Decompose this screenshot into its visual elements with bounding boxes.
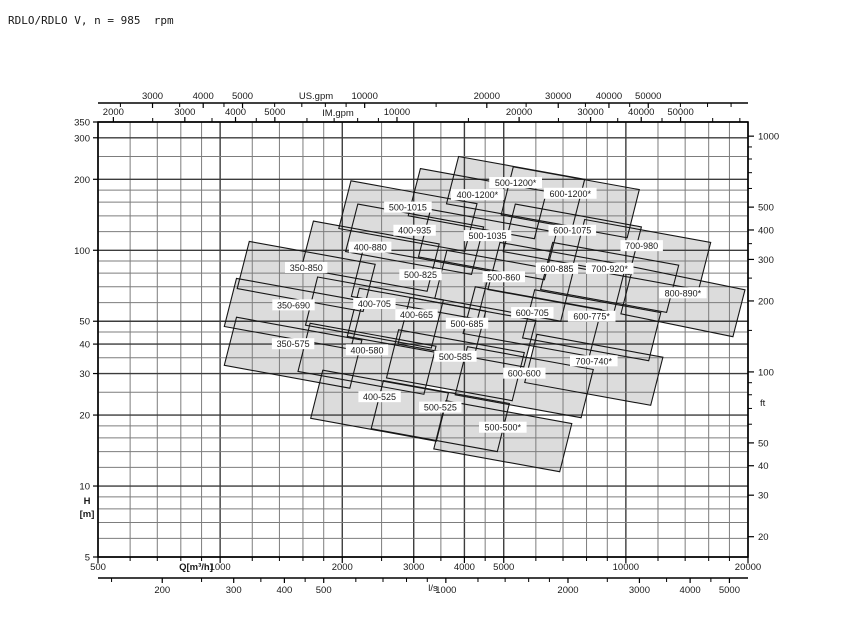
axis-label-usgpm: US.gpm	[299, 91, 333, 102]
axis-label-ft: ft	[760, 398, 766, 409]
ls-tick-label: 3000	[629, 585, 650, 596]
pump-model-label: 500-1015	[389, 203, 427, 213]
h-axis-tick-label: 40	[79, 340, 90, 351]
pump-model-label: 600-1075	[553, 226, 591, 236]
ls-tick-label: 400	[276, 585, 292, 596]
q-axis-tick-label: 500	[90, 562, 106, 573]
ft-axis-tick-label: 500	[758, 203, 774, 214]
ls-tick-label: 2000	[557, 585, 578, 596]
q-axis-tick-label: 4000	[454, 562, 475, 573]
usgpm-tick-label: 5000	[232, 91, 253, 102]
h-axis-tick-label: 10	[79, 482, 90, 493]
ls-tick-label: 4000	[680, 585, 701, 596]
pump-model-label: 350-850	[290, 263, 323, 273]
q-axis-tick-label: 20000	[735, 562, 761, 573]
axis-label-h: H	[84, 496, 91, 507]
q-axis-tick-label: 2000	[332, 562, 353, 573]
ft-axis-tick-label: 20	[758, 532, 769, 543]
axis-label-q-m3h: Q[m³/h]	[179, 562, 213, 573]
ft-axis-tick-label: 300	[758, 255, 774, 266]
pump-model-label: 500-825	[404, 270, 437, 280]
pump-model-label: 600-1200*	[549, 189, 591, 199]
pump-model-label: 800-890*	[665, 288, 702, 298]
pump-range-chart: RDLO/RDLO V, n = 985 rpm 350300200100504…	[0, 0, 850, 630]
pump-model-label: 500-525	[424, 403, 457, 413]
pump-model-label: 350-690	[277, 300, 310, 310]
imgpm-tick-label: 4000	[225, 107, 246, 118]
q-axis-tick-label: 10000	[613, 562, 639, 573]
h-axis-tick-label: 30	[79, 369, 90, 380]
pump-model-label: 600-705	[516, 308, 549, 318]
axis-unit-m: [m]	[80, 509, 95, 520]
pump-model-label: 400-580	[350, 345, 383, 355]
usgpm-tick-label: 30000	[545, 91, 571, 102]
h-axis-tick-label: 100	[74, 246, 90, 257]
q-axis-tick-label: 3000	[403, 562, 424, 573]
ls-tick-label: 5000	[719, 585, 740, 596]
axis-label-imgpm: IM.gpm	[322, 108, 354, 119]
usgpm-tick-label: 20000	[474, 91, 500, 102]
h-axis-tick-label: 200	[74, 175, 90, 186]
pump-model-label: 500-1035	[468, 231, 506, 241]
pump-model-label: 500-685	[450, 319, 483, 329]
imgpm-tick-label: 10000	[384, 107, 410, 118]
ls-tick-label: 200	[154, 585, 170, 596]
usgpm-tick-label: 3000	[142, 91, 163, 102]
imgpm-tick-label: 50000	[667, 107, 693, 118]
pump-model-label: 400-880	[354, 243, 387, 253]
imgpm-tick-label: 40000	[628, 107, 654, 118]
pump-model-label: 600-775*	[573, 312, 610, 322]
ft-axis-tick-label: 400	[758, 225, 774, 236]
ls-tick-label: 1000	[435, 585, 456, 596]
pump-model-label: 700-920*	[591, 264, 628, 274]
usgpm-tick-label: 50000	[635, 91, 661, 102]
usgpm-tick-label: 10000	[351, 91, 377, 102]
h-axis-tick-label: 50	[79, 317, 90, 328]
imgpm-tick-label: 3000	[174, 107, 195, 118]
ls-tick-label: 300	[226, 585, 242, 596]
h-axis-tick-label: 350	[74, 118, 90, 129]
pump-model-label: 700-740*	[576, 356, 613, 366]
ft-axis-tick-label: 30	[758, 491, 769, 502]
imgpm-tick-label: 2000	[103, 107, 124, 118]
q-axis-tick-label: 5000	[493, 562, 514, 573]
pump-model-label: 500-500*	[485, 423, 522, 433]
imgpm-tick-label: 30000	[577, 107, 603, 118]
ls-tick-label: 500	[316, 585, 332, 596]
pump-model-label: 600-885	[540, 264, 573, 274]
pump-model-label: 700-980	[625, 241, 658, 251]
usgpm-tick-label: 40000	[596, 91, 622, 102]
pump-model-label: 400-1200*	[457, 190, 499, 200]
ft-axis-tick-label: 100	[758, 367, 774, 378]
ft-axis-tick-label: 200	[758, 296, 774, 307]
pump-model-label: 400-525	[363, 392, 396, 402]
pump-model-label: 400-665	[400, 310, 433, 320]
axis-label-ls: l/s	[428, 583, 438, 594]
h-axis-tick-label: 20	[79, 411, 90, 422]
pump-model-label: 400-935	[398, 226, 431, 236]
pump-model-label: 500-585	[439, 352, 472, 362]
pump-model-label: 500-860	[487, 272, 520, 282]
imgpm-tick-label: 5000	[264, 107, 285, 118]
usgpm-tick-label: 4000	[193, 91, 214, 102]
pump-model-label: 400-705	[358, 299, 391, 309]
ft-axis-tick-label: 40	[758, 461, 769, 472]
pump-model-label: 350-575	[277, 339, 310, 349]
imgpm-tick-label: 20000	[506, 107, 532, 118]
h-axis-tick-label: 300	[74, 133, 90, 144]
pump-model-label: 600-600	[508, 369, 541, 379]
ft-axis-tick-label: 1000	[758, 132, 779, 143]
ft-axis-tick-label: 50	[758, 438, 769, 449]
pump-model-label: 500-1200*	[495, 178, 537, 188]
chart-canvas: 3503002001005040302010510005004003002001…	[0, 0, 850, 630]
